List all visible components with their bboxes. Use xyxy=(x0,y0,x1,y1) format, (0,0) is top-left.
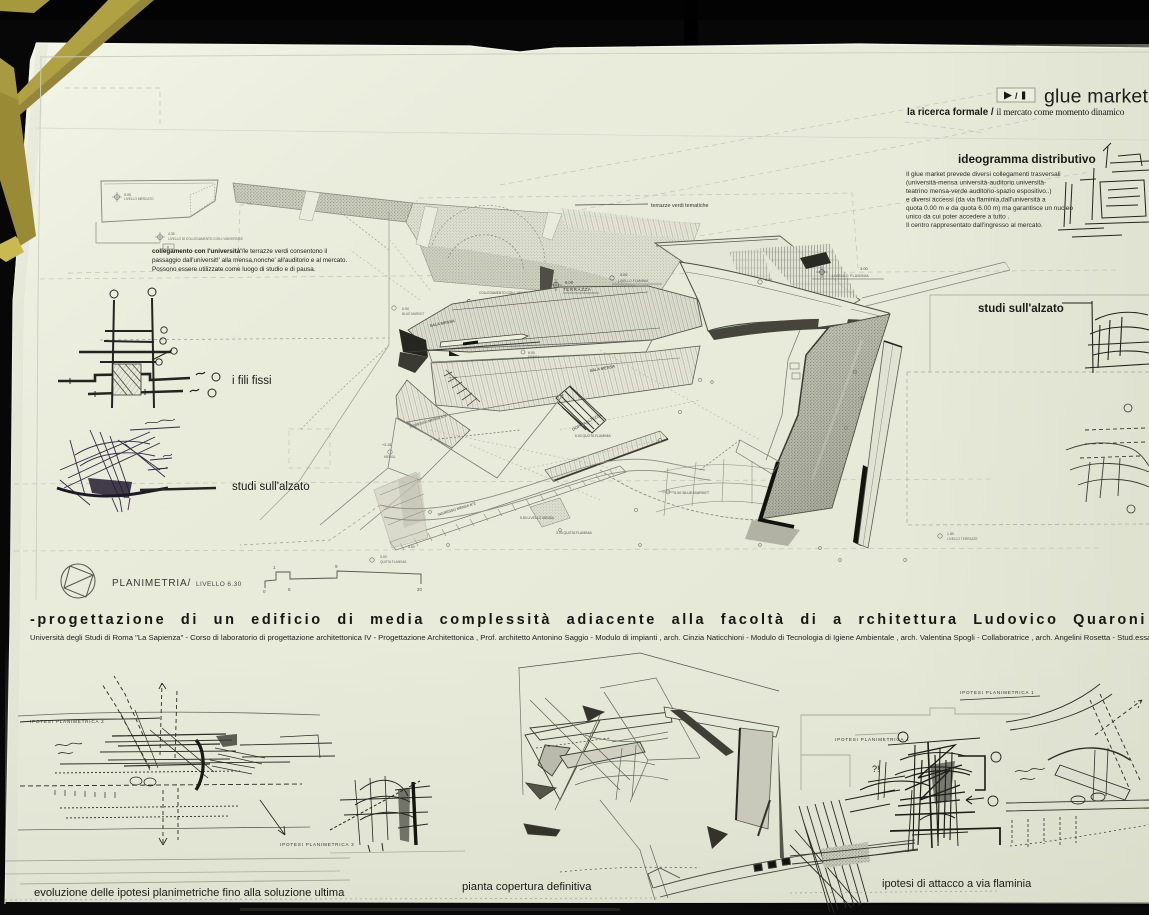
svg-text:-progettazione di un edificio: -progettazione di un edificio di media c… xyxy=(30,612,1147,628)
svg-text:LIVELLO MERCATO: LIVELLO MERCATO xyxy=(124,197,154,201)
svg-text:LIVELLO FLAMINIA: LIVELLO FLAMINIA xyxy=(618,279,649,283)
svg-text:quota 0.00 m e da quota 6.00 m: quota 0.00 m e da quota 6.00 m) ma garan… xyxy=(906,205,1073,212)
svg-text:e diversi accessi (da via flam: e diversi accessi (da via flaminia,dall'… xyxy=(906,197,1046,204)
svg-text:PLANIMETRIA/: PLANIMETRIA/ xyxy=(112,578,191,589)
svg-text:QUOTA FLAMINIA: QUOTA FLAMINIA xyxy=(380,560,407,564)
svg-text:teatrino mensa-verde auditor: teatrino mensa-verde auditorio-spazio es… xyxy=(906,188,1052,195)
svg-text:0.00: 0.00 xyxy=(402,307,409,311)
svg-text:1.50: 1.50 xyxy=(947,532,954,536)
svg-text:collegamento con l'università': collegamento con l'università'/le terraz… xyxy=(152,248,327,255)
svg-text:BLUE MARKET: BLUE MARKET xyxy=(402,312,425,316)
svg-text:+3.15: +3.15 xyxy=(382,443,391,447)
svg-text:pianta copertura definitiva: pianta copertura definitiva xyxy=(462,881,592,893)
svg-text:3.00: 3.00 xyxy=(620,273,627,277)
svg-text:3.00 QUOTA FLAMINIA: 3.00 QUOTA FLAMINIA xyxy=(556,531,592,535)
svg-text:?!: ?! xyxy=(872,764,880,774)
svg-text:IPOTESI PLANIMETRICA 3: IPOTESI PLANIMETRICA 3 xyxy=(280,842,355,847)
svg-text:Il centro rappresentato dall'i: Il centro rappresentato dall'ingresso al… xyxy=(906,222,1043,229)
svg-text:ipotesi di attacco a via flami: ipotesi di attacco a via flaminia xyxy=(882,878,1032,890)
svg-text:5.00 BLUE MARKET: 5.00 BLUE MARKET xyxy=(674,491,710,495)
svg-text:3.00: 3.00 xyxy=(380,555,387,559)
svg-text:TERRAZZA: TERRAZZA xyxy=(563,287,592,292)
svg-text:i fili fissi: i fili fissi xyxy=(232,375,272,387)
svg-text:terrazze verdi tematiche: terrazze verdi tematiche xyxy=(651,203,709,209)
svg-text:4.30: 4.30 xyxy=(168,232,175,236)
svg-text:20: 20 xyxy=(417,587,423,592)
svg-text:IPOTESI PLANIMETRICA 1: IPOTESI PLANIMETRICA 1 xyxy=(960,690,1035,695)
svg-text:MENSA: MENSA xyxy=(384,455,396,459)
svg-text:LIVELLO 6.30: LIVELLO 6.30 xyxy=(196,581,242,588)
svg-text:la ricerca formale / il mercat: la ricerca formale / il mercato come mom… xyxy=(907,107,1125,118)
svg-text:LIVELLO DI COLLEGAMENTO CON L': LIVELLO DI COLLEGAMENTO CON L'UNIVERSITA… xyxy=(168,237,244,241)
svg-text:Università degli Studi di Roma: Università degli Studi di Roma "La Sapie… xyxy=(30,633,1149,642)
svg-text:Possono essere utilizzate come: Possono essere utilizzate come luogo di … xyxy=(152,266,316,273)
svg-text:5.50 LIVELLO MENSA: 5.50 LIVELLO MENSA xyxy=(520,516,555,520)
svg-text:6.00: 6.00 xyxy=(765,278,772,282)
svg-text:passaggio dall'universit!' all: passaggio dall'universit!' alla mensa,no… xyxy=(152,257,347,264)
svg-text:LIVELLO TERRAZZE: LIVELLO TERRAZZE xyxy=(947,537,978,541)
svg-text:LIVELLO FLAMINIA: LIVELLO FLAMINIA xyxy=(832,274,869,278)
svg-text:5.00: 5.00 xyxy=(408,545,415,549)
svg-text:evoluzione delle ipotesi plani: evoluzione delle ipotesi planimetriche f… xyxy=(34,887,345,899)
svg-text:studi sull'alzato: studi sull'alzato xyxy=(978,303,1064,315)
svg-text:6.00: 6.00 xyxy=(565,280,574,285)
svg-text:studi sull'alzato: studi sull'alzato xyxy=(232,481,310,493)
svg-text:6.00 QUOTA FLAMINIA: 6.00 QUOTA FLAMINIA xyxy=(575,434,611,438)
svg-text:(università-mensa università-: (università-mensa università-auditorio u… xyxy=(906,180,1046,187)
svg-text:3.00: 3.00 xyxy=(860,266,869,271)
svg-text:glue market: glue market xyxy=(1044,86,1148,108)
svg-text:ideogramma distributivo: ideogramma distributivo xyxy=(958,152,1096,166)
svg-text:unico da cui poter accedere a: unico da cui poter accedere a tutto . xyxy=(906,214,1010,221)
svg-text:Il glue market prevede divers: Il glue market prevede diversi collegame… xyxy=(906,171,1061,178)
